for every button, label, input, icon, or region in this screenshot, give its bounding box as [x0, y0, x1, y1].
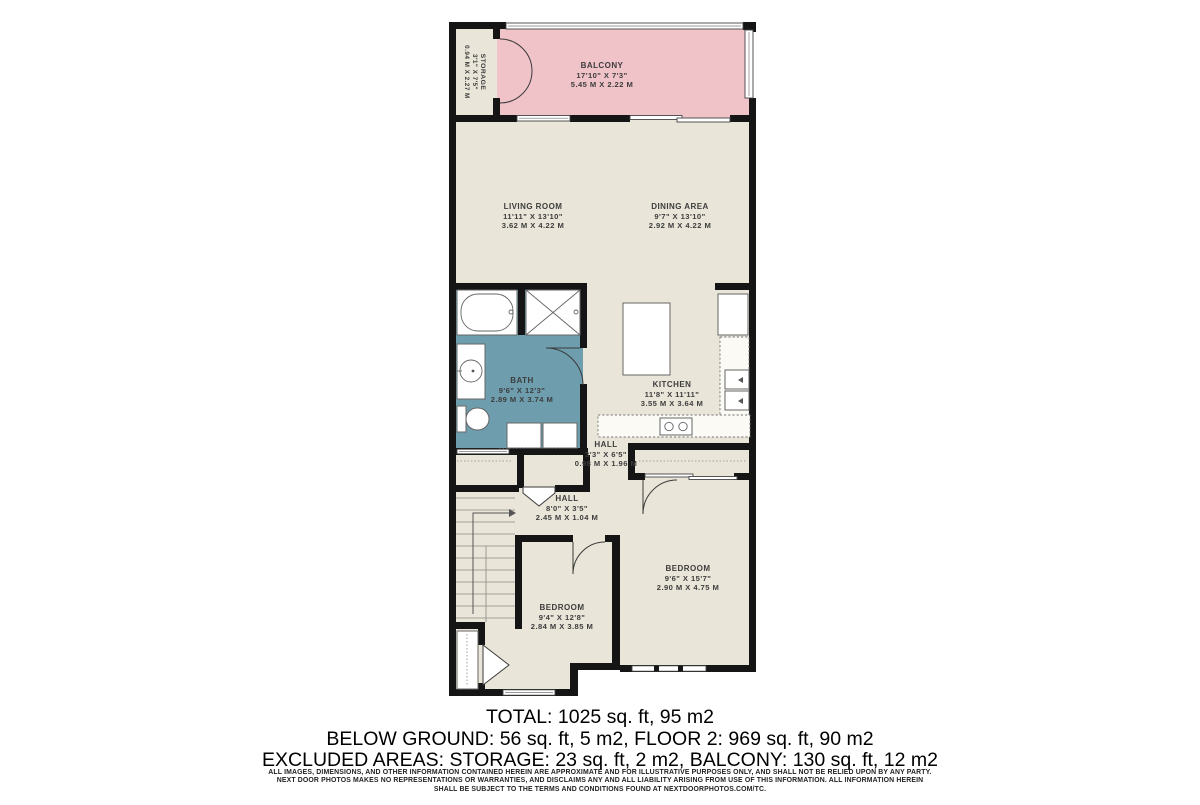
room-name: DINING AREA — [649, 202, 711, 212]
room-dims-m: 2.45 M X 1.04 M — [536, 513, 598, 523]
room-dims-ft: 9'6" X 15'7" — [657, 573, 719, 583]
washer — [507, 423, 541, 448]
room-label-kitchen: KITCHEN 11'8" X 11'11" 3.55 M X 3.64 M — [641, 380, 703, 409]
room-dims-m: 2.84 M X 3.85 M — [531, 622, 593, 632]
room-dims-m: 0.98 M X 1.96 M — [575, 459, 637, 469]
legal-disclaimer: ALL IMAGES, DIMENSIONS, AND OTHER INFORM… — [0, 769, 1200, 794]
room-label-balcony: BALCONY 17'10" X 7'3" 5.45 M X 2.22 M — [571, 61, 633, 90]
oven — [725, 370, 749, 389]
summary-total: TOTAL: 1025 sq. ft, 95 m2 — [0, 707, 1200, 729]
fridge — [718, 294, 748, 335]
bathtub — [457, 290, 517, 335]
room-dims-ft: 17'10" X 7'3" — [571, 70, 633, 80]
summary-floors: BELOW GROUND: 56 sq. ft, 5 m2, FLOOR 2: … — [0, 729, 1200, 751]
disclaimer-line: ALL IMAGES, DIMENSIONS, AND OTHER INFORM… — [0, 769, 1200, 777]
room-name: KITCHEN — [641, 380, 703, 390]
room-label-bath: BATH 9'6" X 12'3" 2.89 M X 3.74 M — [491, 376, 553, 405]
toilet — [457, 406, 466, 432]
disclaimer-line: NEXT DOOR PHOTOS MAKES NO REPRESENTATION… — [0, 777, 1200, 785]
room-dims-ft: 8'0" X 3'5" — [536, 503, 598, 513]
room-label-living-room: LIVING ROOM 11'11" X 13'10" 3.62 M X 4.2… — [502, 202, 564, 231]
room-name: STORAGE — [478, 45, 486, 99]
room-name: BEDROOM — [657, 564, 719, 574]
room-dims-m: 0.94 M X 2.27 M — [462, 45, 470, 99]
room-dims-ft: 3'1" X 7'5" — [470, 45, 478, 99]
room-label-dining-area: DINING AREA 9'7" X 13'10" 2.92 M X 4.22 … — [649, 202, 711, 231]
room-name: BEDROOM — [531, 603, 593, 613]
room-name: HALL — [575, 440, 637, 450]
room-name: HALL — [536, 494, 598, 504]
floor-plan: STORAGE 3'1" X 7'5" 0.94 M X 2.27 M BALC… — [449, 14, 761, 706]
room-dims-m: 3.55 M X 3.64 M — [641, 399, 703, 409]
room-label-hall-upper: HALL 3'3" X 6'5" 0.98 M X 1.96 M — [575, 440, 637, 469]
room-dims-ft: 11'8" X 11'11" — [641, 389, 703, 399]
room-dims-ft: 9'6" X 12'3" — [491, 385, 553, 395]
floor-areas — [452, 25, 753, 693]
room-label-storage: STORAGE 3'1" X 7'5" 0.94 M X 2.27 M — [462, 45, 486, 99]
room-dims-ft: 9'7" X 13'10" — [649, 211, 711, 221]
room-dims-ft: 3'3" X 6'5" — [575, 449, 637, 459]
floor-plan-drawing — [449, 14, 761, 706]
room-dims-m: 3.62 M X 4.22 M — [502, 221, 564, 231]
room-name: BALCONY — [571, 61, 633, 71]
room-label-bedroom-right: BEDROOM 9'6" X 15'7" 2.90 M X 4.75 M — [657, 564, 719, 593]
room-name: BATH — [491, 376, 553, 386]
room-dims-m: 2.90 M X 4.75 M — [657, 583, 719, 593]
dishwasher — [725, 391, 749, 410]
bathroom-vanity — [457, 344, 485, 399]
room-dims-ft: 9'4" X 12'8" — [531, 612, 593, 622]
room-name: LIVING ROOM — [502, 202, 564, 212]
dryer — [543, 423, 577, 448]
kitchen-island — [623, 303, 670, 375]
area-summary: TOTAL: 1025 sq. ft, 95 m2 BELOW GROUND: … — [0, 707, 1200, 772]
disclaimer-line: SHALL BE SUBJECT TO THE TERMS AND CONDIT… — [0, 786, 1200, 794]
room-dims-m: 2.92 M X 4.22 M — [649, 221, 711, 231]
room-dims-ft: 11'11" X 13'10" — [502, 211, 564, 221]
room-label-bedroom-left: BEDROOM 9'4" X 12'8" 2.84 M X 3.85 M — [531, 603, 593, 632]
under-stair-closet — [457, 631, 478, 689]
room-dims-m: 5.45 M X 2.22 M — [571, 80, 633, 90]
room-dims-m: 2.89 M X 3.74 M — [491, 395, 553, 405]
room-label-hall-lower: HALL 8'0" X 3'5" 2.45 M X 1.04 M — [536, 494, 598, 523]
